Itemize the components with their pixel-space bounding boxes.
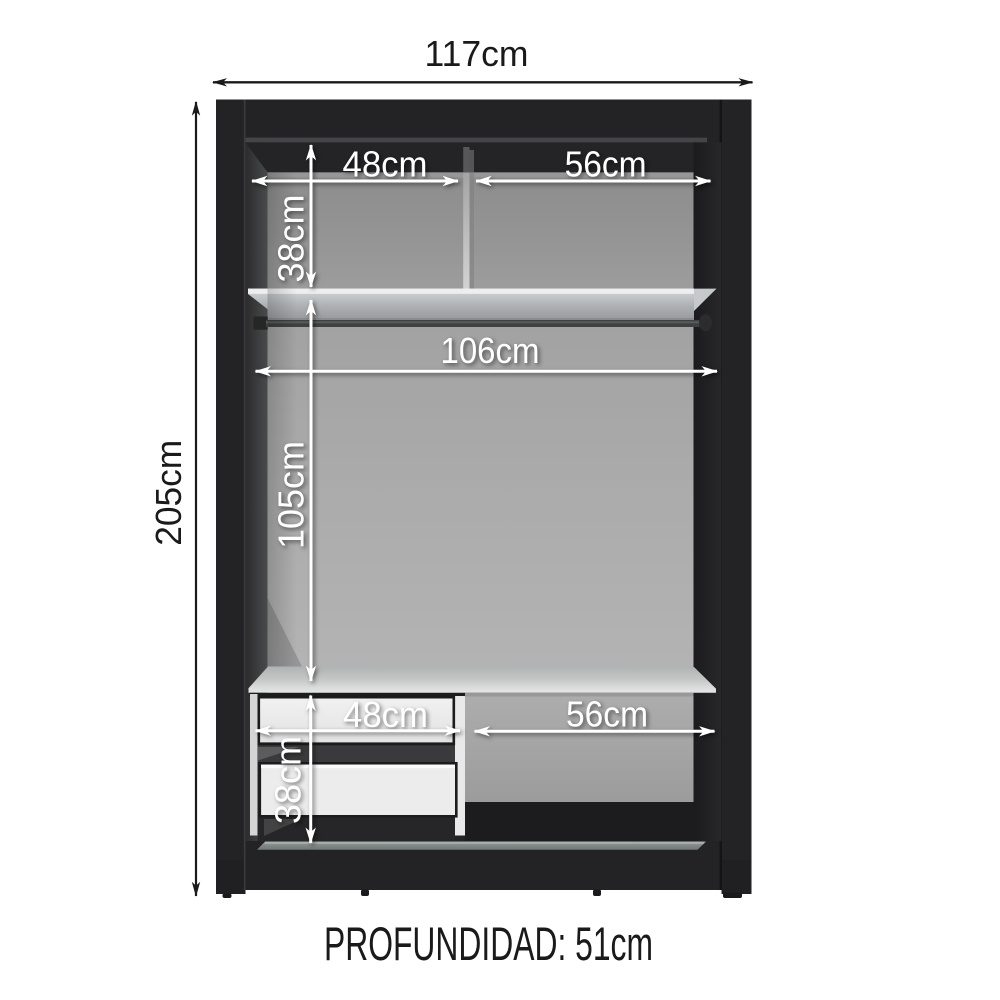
svg-text:48cm: 48cm [343, 694, 428, 735]
svg-text:117cm: 117cm [425, 33, 529, 74]
svg-text:48cm: 48cm [343, 143, 428, 184]
svg-text:205cm: 205cm [148, 440, 189, 546]
svg-text:56cm: 56cm [565, 143, 647, 184]
svg-text:56cm: 56cm [566, 694, 648, 735]
svg-text:105cm: 105cm [271, 441, 312, 549]
svg-text:106cm: 106cm [441, 330, 540, 371]
svg-text:38cm: 38cm [268, 736, 309, 824]
svg-text:PROFUNDIDAD: 51cm: PROFUNDIDAD: 51cm [324, 917, 653, 970]
svg-text:38cm: 38cm [271, 195, 312, 283]
